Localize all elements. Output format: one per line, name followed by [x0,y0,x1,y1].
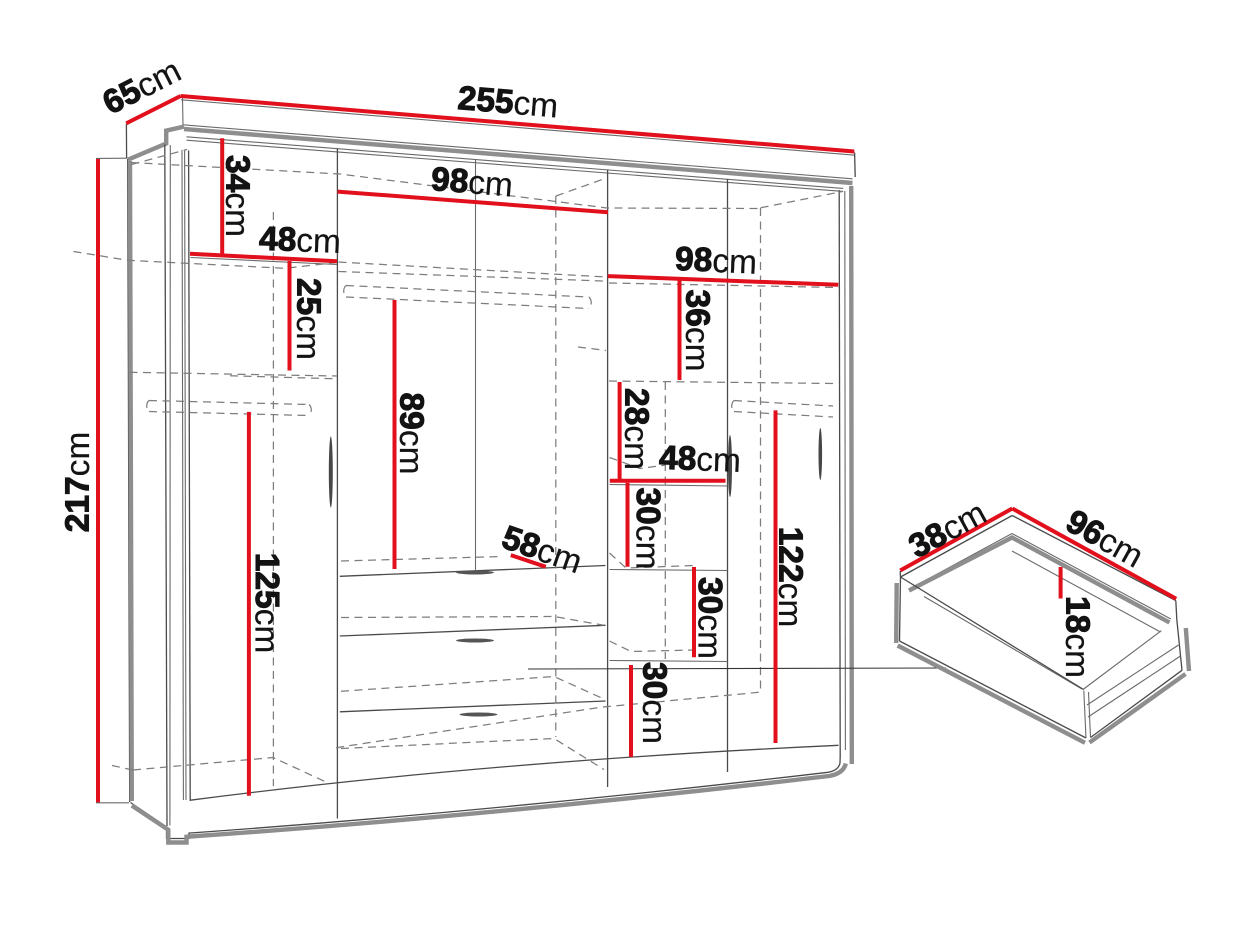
svg-text:217cm: 217cm [60,432,97,533]
svg-text:28cm: 28cm [618,388,655,470]
svg-text:30cm: 30cm [629,488,666,570]
svg-text:36cm: 36cm [679,290,716,372]
svg-text:65cm: 65cm [97,52,187,122]
svg-text:96cm: 96cm [1060,503,1150,575]
svg-text:18cm: 18cm [1058,596,1095,678]
svg-text:30cm: 30cm [691,577,728,659]
svg-text:34cm: 34cm [219,155,256,237]
svg-text:98cm: 98cm [430,161,515,204]
svg-text:25cm: 25cm [290,278,327,360]
svg-text:30cm: 30cm [636,662,673,744]
svg-text:48cm: 48cm [258,221,341,261]
svg-text:122cm: 122cm [772,527,809,628]
svg-text:89cm: 89cm [393,393,430,475]
svg-text:98cm: 98cm [674,241,757,282]
svg-text:48cm: 48cm [658,440,741,480]
svg-text:125cm: 125cm [248,553,285,654]
svg-text:58cm: 58cm [497,519,587,581]
